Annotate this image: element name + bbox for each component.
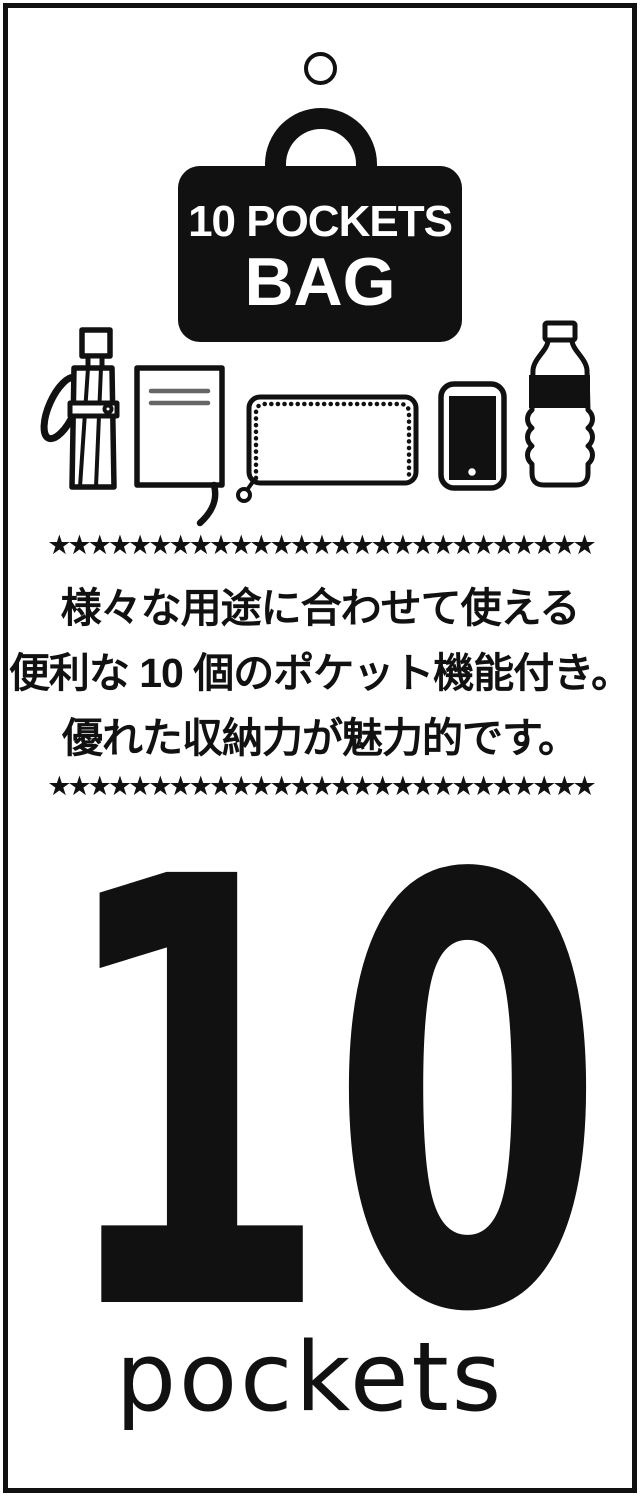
description-line-1: 様々な用途に合わせて使える: [0, 576, 640, 641]
description-line-2: 便利な 10 個のポケット機能付き。: [0, 641, 640, 706]
umbrella-icon: [37, 330, 117, 487]
notebook-icon: [137, 368, 222, 523]
smartphone-icon: [441, 384, 504, 488]
big-number: 10: [55, 858, 605, 1318]
pocket-items-illustration: [0, 320, 640, 535]
description-line-3: 優れた収納力が魅力的です。: [0, 706, 640, 771]
star-divider-bottom: ★★★★★★★★★★★★★★★★★★★★★★★★★★★: [0, 772, 640, 802]
big-number-graphic: 10: [0, 858, 640, 1318]
bottle-icon: [528, 323, 593, 485]
bag-badge-subtitle: BAG: [244, 250, 395, 314]
hang-hole: [304, 52, 337, 85]
pockets-label: pockets: [0, 1328, 630, 1428]
star-divider-top: ★★★★★★★★★★★★★★★★★★★★★★★★★★★: [0, 531, 640, 561]
description-text: 様々な用途に合わせて使える 便利な 10 個のポケット機能付き。 優れた収納力が…: [0, 576, 640, 771]
bag-badge: 10 POCKETS BAG: [178, 166, 462, 342]
product-tag: { "tag": { "badge": { "title": "10 POCKE…: [0, 0, 640, 1500]
wallet-icon: [238, 397, 416, 501]
bag-badge-title: 10 POCKETS: [188, 198, 452, 246]
